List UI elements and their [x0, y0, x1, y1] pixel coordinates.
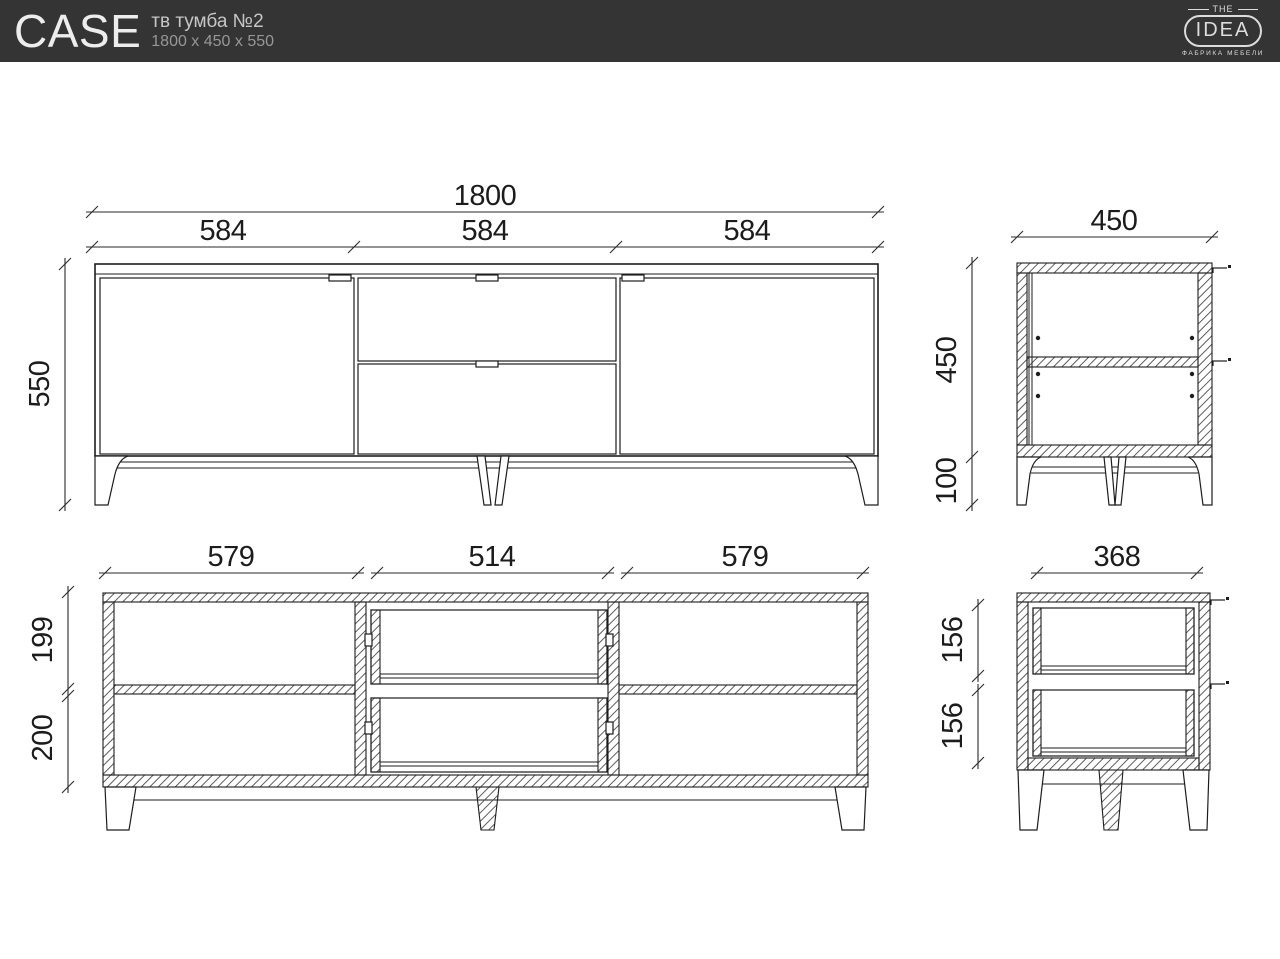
logo-rule-right: [1238, 9, 1259, 10]
dim-label-drawer-bottom: 156: [937, 703, 969, 750]
side-section-middle-leg: [1099, 770, 1123, 830]
front-right-leg: [845, 456, 878, 505]
side-left-leg: [1017, 457, 1041, 505]
dim-label-depth: 450: [1091, 205, 1138, 237]
drawer-slide-clip: [365, 722, 372, 734]
dim-label-inner-depth: 368: [1094, 541, 1141, 573]
front-right-door: [620, 278, 874, 454]
factory-logo: THE IDEA ФАБРИКА МЕБЕЛИ: [1184, 5, 1262, 57]
brand-logo: CASE: [14, 8, 141, 54]
section-shelf-right: [619, 685, 857, 694]
factory-logo-subtitle: ФАБРИКА МЕБЕЛИ: [1182, 50, 1264, 57]
front-middle-leg-2: [495, 456, 509, 505]
dim-front-height: 550: [24, 258, 71, 511]
title-bar: CASE тв тумба №2 1800 x 450 x 550 THE ID…: [0, 0, 1280, 62]
section-middle-leg: [476, 787, 499, 830]
dim-label-section-middle: 584: [462, 215, 509, 247]
front-view: 1800 584 584 584 550: [24, 180, 884, 511]
section-right-leg: [835, 787, 866, 830]
drawing-sheet-page: CASE тв тумба №2 1800 x 450 x 550 THE ID…: [0, 0, 1280, 959]
side-bottom-panel: [1017, 445, 1212, 457]
side-section-right-leg: [1183, 770, 1209, 830]
hinge-bracket-top: [1212, 265, 1231, 273]
right-door-handle: [622, 275, 644, 281]
section-right-wall: [857, 602, 868, 775]
section-drawer-top: [371, 610, 607, 684]
dim-label-lower-height: 200: [27, 715, 59, 762]
section-drawer-bottom: [371, 698, 607, 772]
section-bottom-panel: [103, 775, 868, 787]
product-info: тв тумба №2 1800 x 450 x 550: [151, 11, 274, 51]
side-section-back-wall: [1199, 602, 1210, 770]
slide-bracket-top: [1210, 597, 1229, 605]
technical-drawing: 1800 584 584 584 550: [0, 62, 1280, 959]
section-top-panel: [103, 593, 868, 602]
side-back-wall: [1198, 273, 1212, 445]
front-middle-leg: [477, 456, 491, 505]
dim-section-heights: 199 200: [27, 586, 74, 793]
hinge-bracket-middle: [1212, 358, 1231, 366]
side-right-leg: [1188, 457, 1212, 505]
dim-side-depth: 450: [1011, 205, 1218, 243]
side-section-cabinet: [1017, 593, 1229, 830]
side-section-front-wall: [1017, 602, 1028, 770]
side-view: 450 450 100: [931, 205, 1231, 511]
dim-label-total-height: 550: [24, 361, 56, 408]
drawer-slide-clip: [606, 634, 613, 646]
dim-side-heights: 450 100: [931, 257, 978, 511]
bottom-drawer-handle: [476, 361, 498, 367]
side-middle-leg: [1104, 457, 1115, 505]
section-left-wall: [103, 602, 114, 775]
section-left-leg: [105, 787, 136, 830]
side-section-bottom-panel: [1028, 758, 1199, 770]
side-section-left-leg: [1018, 770, 1044, 830]
side-section-drawer-top: [1033, 608, 1194, 674]
slide-bracket-bottom: [1210, 681, 1229, 689]
logo-rule-left: [1188, 9, 1209, 10]
front-top-drawer: [358, 278, 616, 361]
side-section-top-panel: [1017, 593, 1210, 602]
front-view-cabinet: [95, 264, 878, 505]
factory-logo-main: IDEA: [1184, 15, 1263, 47]
side-top-panel: [1017, 263, 1212, 273]
logo-the-text: THE: [1213, 5, 1234, 14]
factory-logo-top: THE: [1188, 5, 1258, 14]
front-section-cabinet: [103, 593, 868, 830]
dim-label-section-right: 584: [724, 215, 771, 247]
dim-label-total-width: 1800: [454, 180, 517, 212]
dim-label-section-left: 584: [200, 215, 247, 247]
section-divider-left: [355, 602, 366, 775]
dim-label-inner-left: 579: [208, 541, 255, 573]
drawer-slide-clip: [365, 634, 372, 646]
top-drawer-handle: [476, 275, 498, 281]
product-name: тв тумба №2: [151, 11, 274, 33]
dim-side-section-depth: 368: [1031, 541, 1203, 579]
dim-label-leg-height: 100: [931, 458, 963, 505]
left-door-handle: [329, 275, 351, 281]
side-middle-leg-2: [1115, 457, 1126, 505]
dim-label-body-height: 450: [931, 337, 963, 384]
side-view-cabinet: [1017, 263, 1231, 505]
dim-label-inner-middle: 514: [469, 541, 516, 573]
side-section-drawer-bottom: [1033, 690, 1194, 756]
section-shelf-left: [114, 685, 355, 694]
section-divider-right: [608, 602, 619, 775]
front-bottom-drawer: [358, 364, 616, 454]
front-left-leg: [95, 456, 128, 505]
side-section-view: 368 156 156: [937, 541, 1229, 830]
dim-front-total-width: 1800: [86, 180, 884, 218]
drawer-slide-clip: [606, 722, 613, 734]
product-dimensions: 1800 x 450 x 550: [151, 33, 274, 51]
dim-label-drawer-top: 156: [937, 617, 969, 664]
side-shelf: [1027, 357, 1198, 367]
side-front-wall: [1017, 273, 1027, 445]
dim-front-sections: 584 584 584: [86, 215, 884, 253]
dim-label-upper-height: 199: [27, 617, 59, 664]
dim-section-widths: 579 514 579: [99, 541, 869, 579]
dim-drawer-heights: 156 156: [937, 599, 984, 769]
dim-label-inner-right: 579: [722, 541, 769, 573]
front-left-door: [100, 278, 354, 454]
front-section-view: 579 514 579 199 200: [27, 541, 869, 830]
